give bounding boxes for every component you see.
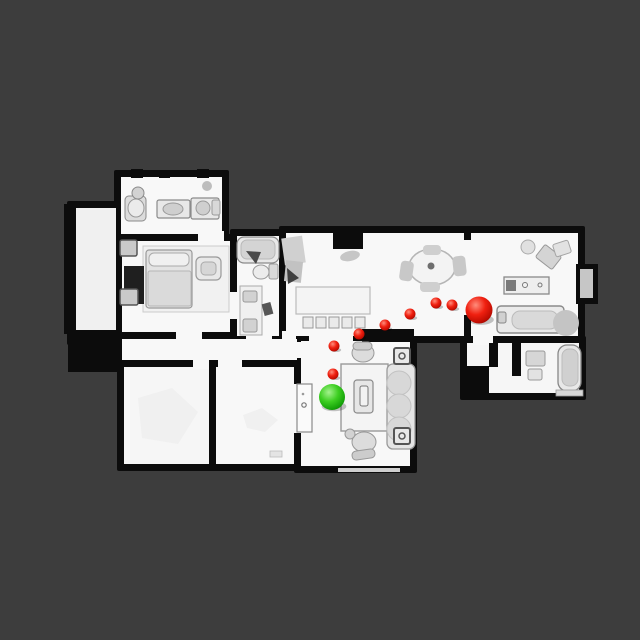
floor-vent [270,451,282,457]
door-bedroom-hallway [176,331,202,341]
sink-basin-right [196,201,210,215]
dresser-handle-2 [538,283,542,287]
wall-top-jut [333,227,363,249]
floor-drain [202,181,212,191]
dining-chair-right [452,255,467,276]
side-ball [345,429,355,439]
wall-bath-right-partition-2 [512,343,521,376]
path-point[interactable] [328,369,339,380]
bath-right-cabinet [528,369,542,380]
closet-shelf [580,269,593,298]
floor-plan-view[interactable] [0,0,640,640]
ottoman-cushion [201,262,216,275]
goal-marker[interactable] [466,297,493,324]
path-point[interactable] [431,298,442,309]
path-point[interactable] [354,329,365,340]
bar-stool-4 [342,317,352,328]
dining-table-hub [428,263,435,270]
wall-tooth-1 [131,169,143,178]
armchair-top-back [353,342,372,350]
remote-control [360,386,368,406]
door-bedroom-bathhall [229,292,239,319]
bathtub-right-basin [562,349,578,386]
wall-outer-left [64,204,76,334]
dresser-handle-1 [523,283,528,288]
bar-stool-1 [303,317,313,328]
path-point[interactable] [380,320,391,331]
toilet-knob [132,187,144,199]
bed-drape [553,310,579,336]
bathtub-step [556,390,583,396]
toilet-hall [253,265,269,279]
bath-right-sink [526,351,545,366]
door-bathroomTL-bedroom [198,231,224,244]
wall-tooth-2 [159,171,170,178]
sink-fixture-right [212,200,220,215]
nightstand-bottom [120,289,138,305]
dining-chair-top [423,245,441,255]
vanity-sink-2 [243,319,257,332]
lounge-ball [521,240,535,254]
vanity-sink-1 [243,291,257,302]
dining-chair-bottom [420,282,440,292]
bar-stool-2 [316,317,326,328]
viewer-canvas[interactable] [0,0,640,640]
wall-bath-right-corner [467,366,489,393]
door-hall-roomB2 [218,359,242,369]
start-marker[interactable] [319,384,345,410]
sink-basin-center [163,203,183,215]
toilet-hall-tank [269,264,278,279]
room-closet-left [74,208,116,338]
path-point[interactable] [405,309,416,320]
wall-mass-left [68,330,120,372]
door-leaf [297,384,312,432]
wall-bath-right-partition-1 [489,343,498,367]
wall-tooth-3 [197,169,209,178]
door-kitchen-hallway [282,331,296,342]
dresser-drawer [506,280,516,291]
door-hall-roomB1 [193,359,209,369]
room-hallway [122,339,297,360]
bed-right-blanket [512,311,558,329]
bed-blanket [148,271,191,306]
bar-stool-3 [329,317,339,328]
bed-right-knob [498,312,506,323]
toilet-bowl [128,199,144,217]
couch-cushion-1 [387,371,411,395]
speaker-top [394,348,410,364]
threshold [338,468,400,472]
kitchen-island [296,287,370,314]
door-hinge-dot [302,393,305,396]
door-hallway-living [295,342,303,358]
path-point[interactable] [329,341,340,352]
couch-cushion-2 [387,394,411,418]
bed-pillow [149,253,189,266]
pantry-blob-1 [281,236,306,266]
nightstand-top [120,240,137,256]
path-point[interactable] [447,300,458,311]
bar-stool-5 [355,317,365,328]
speaker-bottom [394,428,410,444]
